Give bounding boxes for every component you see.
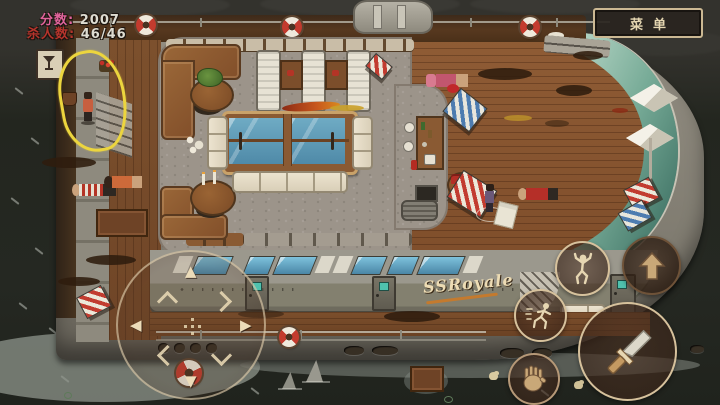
menu-button[interactable]: 菜单 [593,8,703,38]
candle [213,172,216,184]
bar-stool [403,141,414,152]
corner-couch [161,60,195,140]
game-viewport: SSRoyale 分数: 2007 杀人数: 46/46 菜单 ▲ ▼ ◀ [0,0,720,405]
crate [96,209,148,237]
interact-button[interactable] [508,353,560,405]
victim-body [104,176,142,188]
dance-button[interactable] [555,241,610,296]
vent-grill [401,200,438,221]
bubbles [64,392,72,399]
dpad-down-arrow[interactable]: ▼ [185,374,197,389]
runner-icon [524,301,558,331]
bubbles [444,396,453,403]
hand-icon [520,365,548,393]
lifebuoy-icon [279,327,299,347]
candle [202,174,205,185]
lifebuoy-icon [282,17,302,37]
duck [489,372,498,380]
paper-scraps [185,136,209,154]
martini-glass-icon [42,55,56,71]
up-arrow-icon [637,251,667,281]
cabin-window [416,256,466,275]
dpad-up-arrow[interactable]: ▲ [185,264,197,279]
lifebuoy-icon [136,15,156,35]
lifeboat [353,0,433,34]
bar-stool [424,154,436,165]
sun-lounger [256,50,281,112]
skylight-bench [232,171,348,193]
kills-line: 杀人数: 46/46 [27,23,127,42]
menu-button-label: 菜单 [620,14,676,33]
guest-character[interactable] [483,184,496,214]
lifebuoy-icon [520,17,540,37]
side-table [280,60,303,90]
bar-stool [404,122,415,133]
sun-lounger [346,50,371,112]
candle-table [190,180,236,216]
cabin-door [372,276,396,311]
potted-plant [197,68,223,87]
fire-extinguisher [411,160,417,170]
paint-smear [504,115,532,121]
dancer-icon [570,252,596,286]
bottom-bench-row [244,233,412,246]
dpad-right-arrow[interactable]: ▶ [240,318,252,333]
victim-body [518,188,558,200]
corner-couch-bottom [160,214,228,240]
run-button[interactable] [514,289,567,342]
kills-value: 46/46 [81,27,127,42]
attack-button[interactable] [578,302,677,401]
side-table [325,60,348,90]
blood-smear [330,105,364,111]
floating-crate [410,366,444,392]
climb-up-button[interactable] [622,236,681,295]
skylight-window [222,111,358,175]
kills-label: 杀人数: [27,27,75,42]
duck [574,381,583,389]
knife-icon [598,322,658,382]
skylight-bench-right [352,116,373,170]
skylight-bench-left [207,116,228,170]
dpad-control[interactable]: ▲ ▼ ◀ ▶ [116,250,266,400]
cabin-window [272,256,318,275]
dpad-left-arrow[interactable]: ◀ [130,318,142,333]
